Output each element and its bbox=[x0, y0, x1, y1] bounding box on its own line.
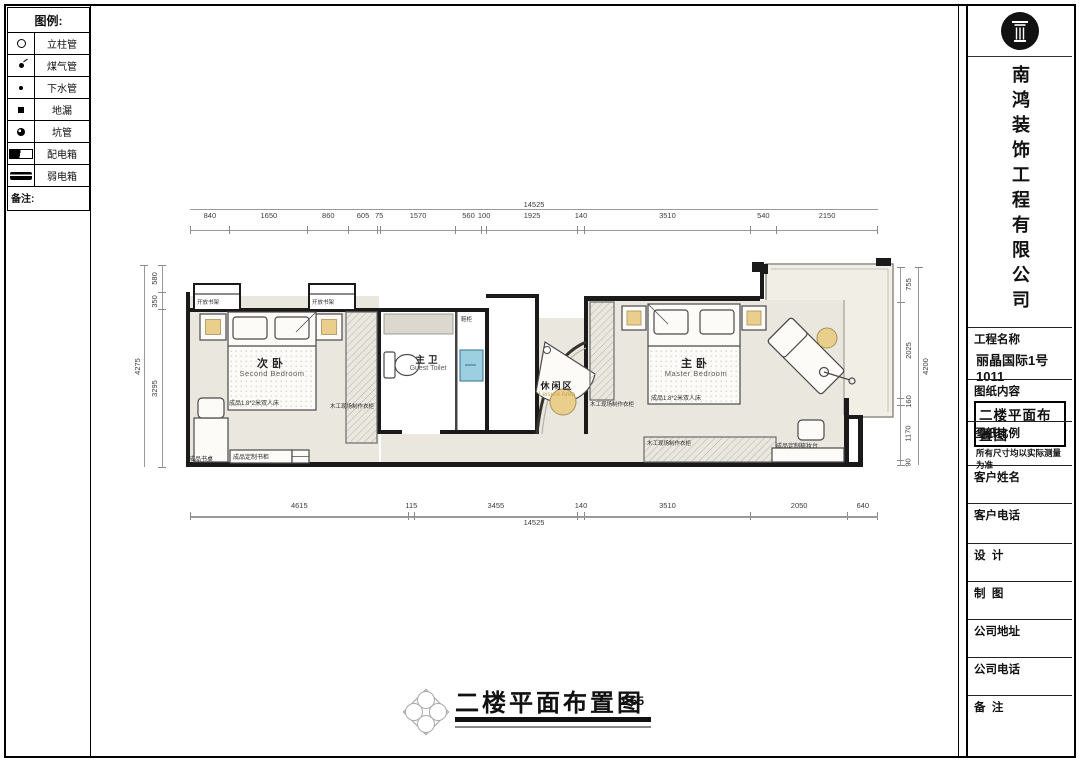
furniture-label-open-bookshelf: 开放书架 bbox=[197, 298, 219, 306]
furniture-label-shoe-cabinet: 鞋柜 bbox=[461, 315, 472, 323]
room-label-guest-toilet-cn: 主卫 bbox=[398, 352, 458, 366]
desk-chair bbox=[198, 398, 224, 418]
wardrobe bbox=[590, 302, 614, 400]
furniture-label-wardrobe: 木工现场制作衣柜 bbox=[330, 402, 374, 410]
room-label-guest-toilet-en: Guest Toilet bbox=[398, 365, 458, 372]
round-side-table bbox=[817, 328, 837, 348]
double-bed bbox=[648, 304, 740, 404]
furniture-label-dresser: 成品定制梳妆台 bbox=[776, 441, 818, 450]
furniture-label-double-bed: 成品1.8*2米双人床 bbox=[651, 393, 701, 402]
furniture-label-wardrobe: 木工现场制作衣柜 bbox=[647, 439, 691, 447]
furniture-label-open-bookshelf: 开放书架 bbox=[312, 298, 334, 306]
vanity-counter bbox=[384, 314, 453, 334]
furniture-label-desk: 成品书桌 bbox=[189, 454, 213, 463]
room-label-leisure-en: Leisure Area bbox=[527, 391, 587, 398]
wardrobe bbox=[346, 312, 377, 443]
furniture-label-bookcase: 成品定制书柜 bbox=[233, 452, 269, 461]
room-label-second-bedroom-en: Second Bedroom bbox=[228, 369, 316, 378]
blueprint-page: 图例: 立柱管煤气管下水管地漏坑管配电箱弱电箱 备注: bbox=[0, 0, 1080, 762]
furniture-label-double-bed: 成品1.8*2米双人床 bbox=[229, 398, 279, 407]
furniture-label-wardrobe: 木工现场制作衣柜 bbox=[590, 400, 634, 408]
dresser-chair bbox=[798, 420, 824, 440]
room-label-master-bedroom-en: Master Bedroom bbox=[650, 369, 742, 378]
dresser-table bbox=[772, 448, 844, 462]
